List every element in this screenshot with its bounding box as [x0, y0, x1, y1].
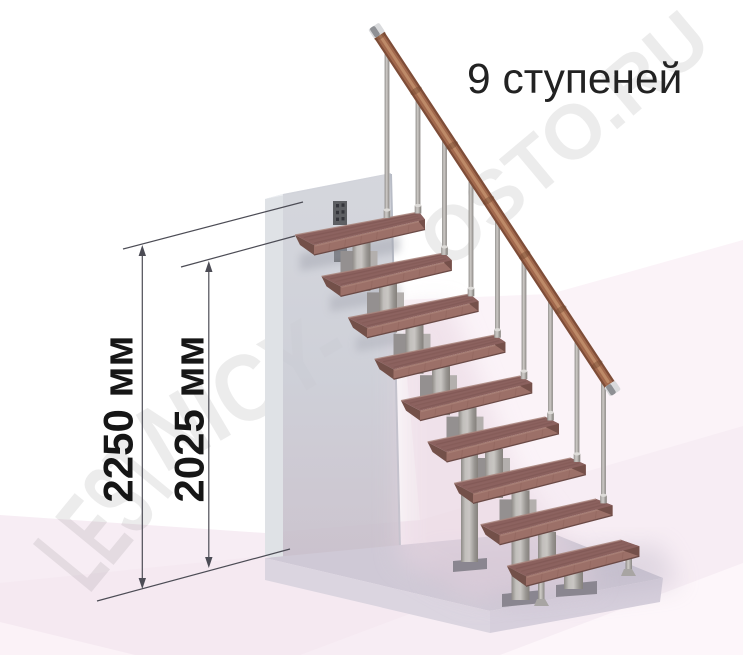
svg-text:2250 мм: 2250 мм: [95, 335, 142, 502]
svg-text:2025 мм: 2025 мм: [166, 335, 213, 502]
svg-text:9 ступеней: 9 ступеней: [467, 56, 682, 103]
